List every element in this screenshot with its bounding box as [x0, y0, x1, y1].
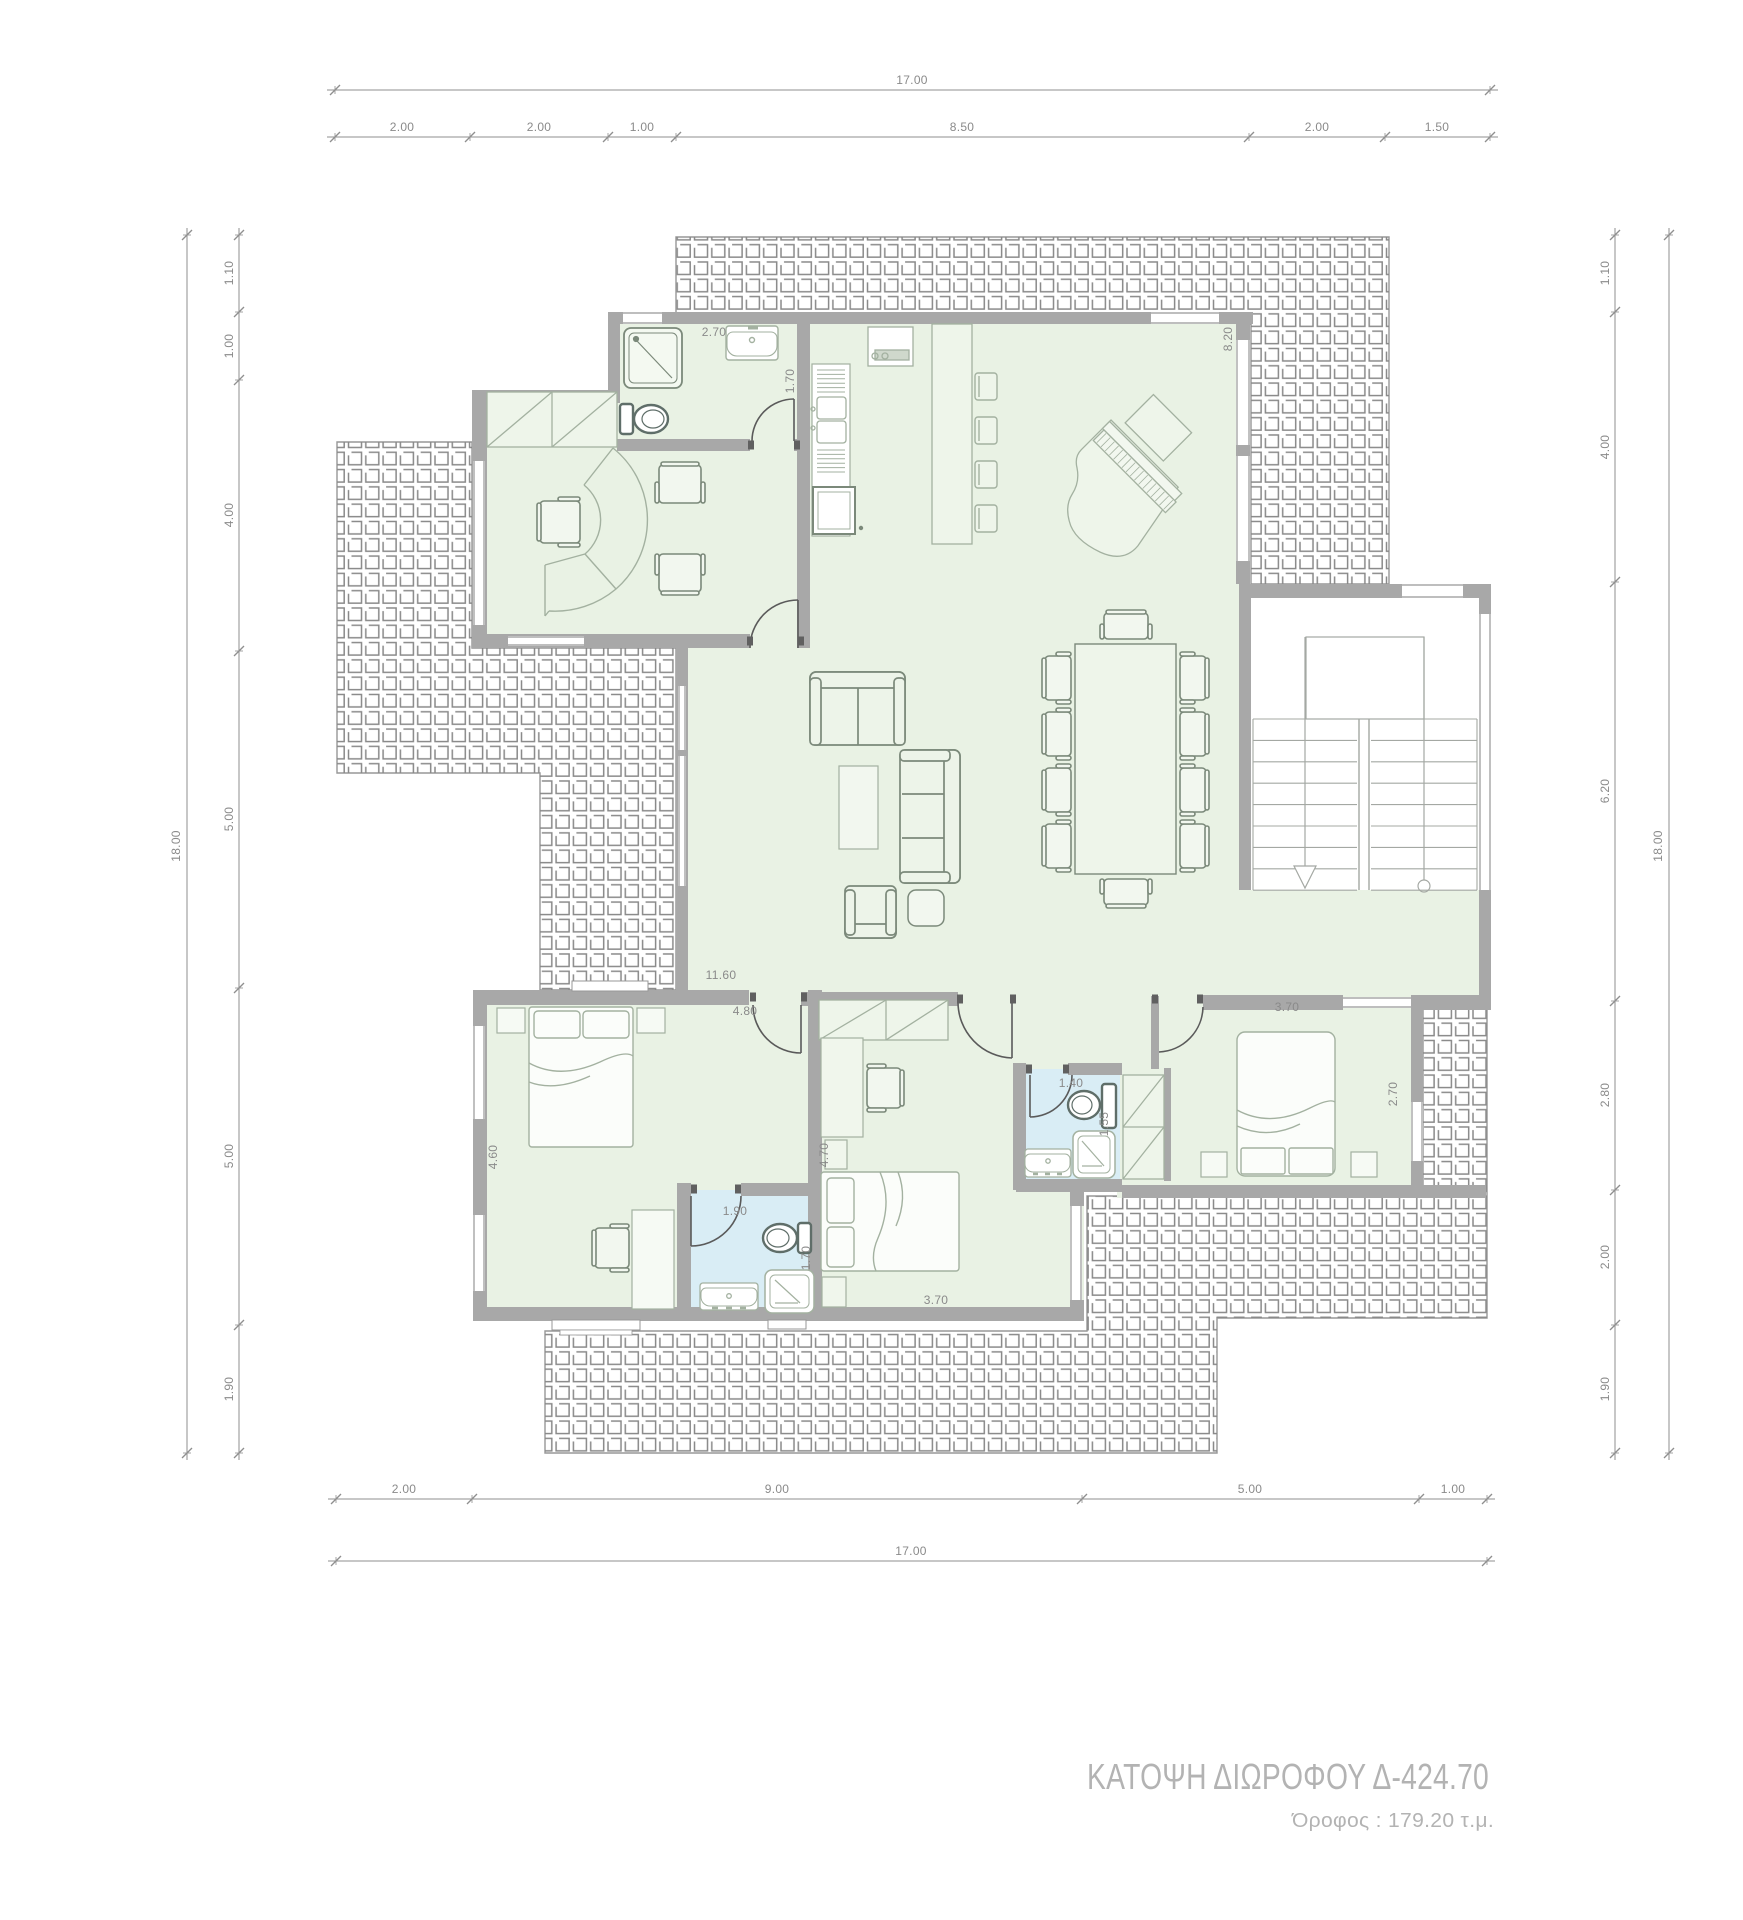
svg-text:6.20: 6.20: [1598, 779, 1612, 804]
svg-text:4.60: 4.60: [486, 1145, 500, 1170]
svg-text:8.20: 8.20: [1221, 327, 1235, 352]
svg-text:18.00: 18.00: [169, 830, 183, 862]
svg-text:5.00: 5.00: [1238, 1482, 1263, 1496]
svg-text:ΚΑΤΟΨΗ ΔΙΩΡΟΦΟΥ Δ-424.70: ΚΑΤΟΨΗ ΔΙΩΡΟΦΟΥ Δ-424.70: [1087, 1756, 1489, 1797]
svg-text:2.00: 2.00: [390, 120, 415, 134]
svg-text:1.90: 1.90: [1598, 1377, 1612, 1402]
svg-text:1.90: 1.90: [222, 1377, 236, 1402]
svg-text:1.55: 1.55: [1097, 1112, 1111, 1137]
svg-text:2.70: 2.70: [1386, 1082, 1400, 1107]
svg-text:8.50: 8.50: [950, 120, 975, 134]
svg-text:4.00: 4.00: [1598, 435, 1612, 460]
svg-text:2.80: 2.80: [1598, 1083, 1612, 1108]
svg-text:1.70: 1.70: [783, 369, 797, 394]
svg-text:1.40: 1.40: [1059, 1076, 1084, 1090]
svg-text:5.00: 5.00: [222, 807, 236, 832]
svg-text:1.70: 1.70: [799, 1246, 813, 1271]
svg-text:1.00: 1.00: [222, 334, 236, 359]
svg-text:2.00: 2.00: [1598, 1245, 1612, 1270]
svg-text:11.60: 11.60: [706, 968, 737, 982]
svg-text:2.70: 2.70: [702, 325, 727, 339]
svg-text:1.50: 1.50: [1425, 120, 1450, 134]
svg-text:2.00: 2.00: [1305, 120, 1330, 134]
svg-text:1.00: 1.00: [630, 120, 655, 134]
svg-text:3.70: 3.70: [924, 1293, 949, 1307]
svg-text:2.00: 2.00: [527, 120, 552, 134]
svg-text:5.00: 5.00: [222, 1144, 236, 1169]
svg-text:1.00: 1.00: [1441, 1482, 1466, 1496]
svg-text:17.00: 17.00: [895, 1544, 927, 1558]
svg-text:9.00: 9.00: [765, 1482, 790, 1496]
svg-text:18.00: 18.00: [1651, 830, 1665, 862]
svg-text:Όροφος : 179.20 τ.μ.: Όροφος : 179.20 τ.μ.: [1291, 1810, 1494, 1832]
svg-text:4.80: 4.80: [733, 1004, 758, 1018]
svg-text:1.10: 1.10: [222, 261, 236, 286]
svg-text:1.90: 1.90: [723, 1204, 748, 1218]
svg-text:4.00: 4.00: [222, 503, 236, 528]
svg-text:3.70: 3.70: [1275, 1000, 1300, 1014]
svg-text:1.10: 1.10: [1598, 261, 1612, 286]
svg-text:2.00: 2.00: [392, 1482, 417, 1496]
svg-text:4.70: 4.70: [817, 1143, 831, 1168]
svg-text:17.00: 17.00: [896, 73, 928, 87]
